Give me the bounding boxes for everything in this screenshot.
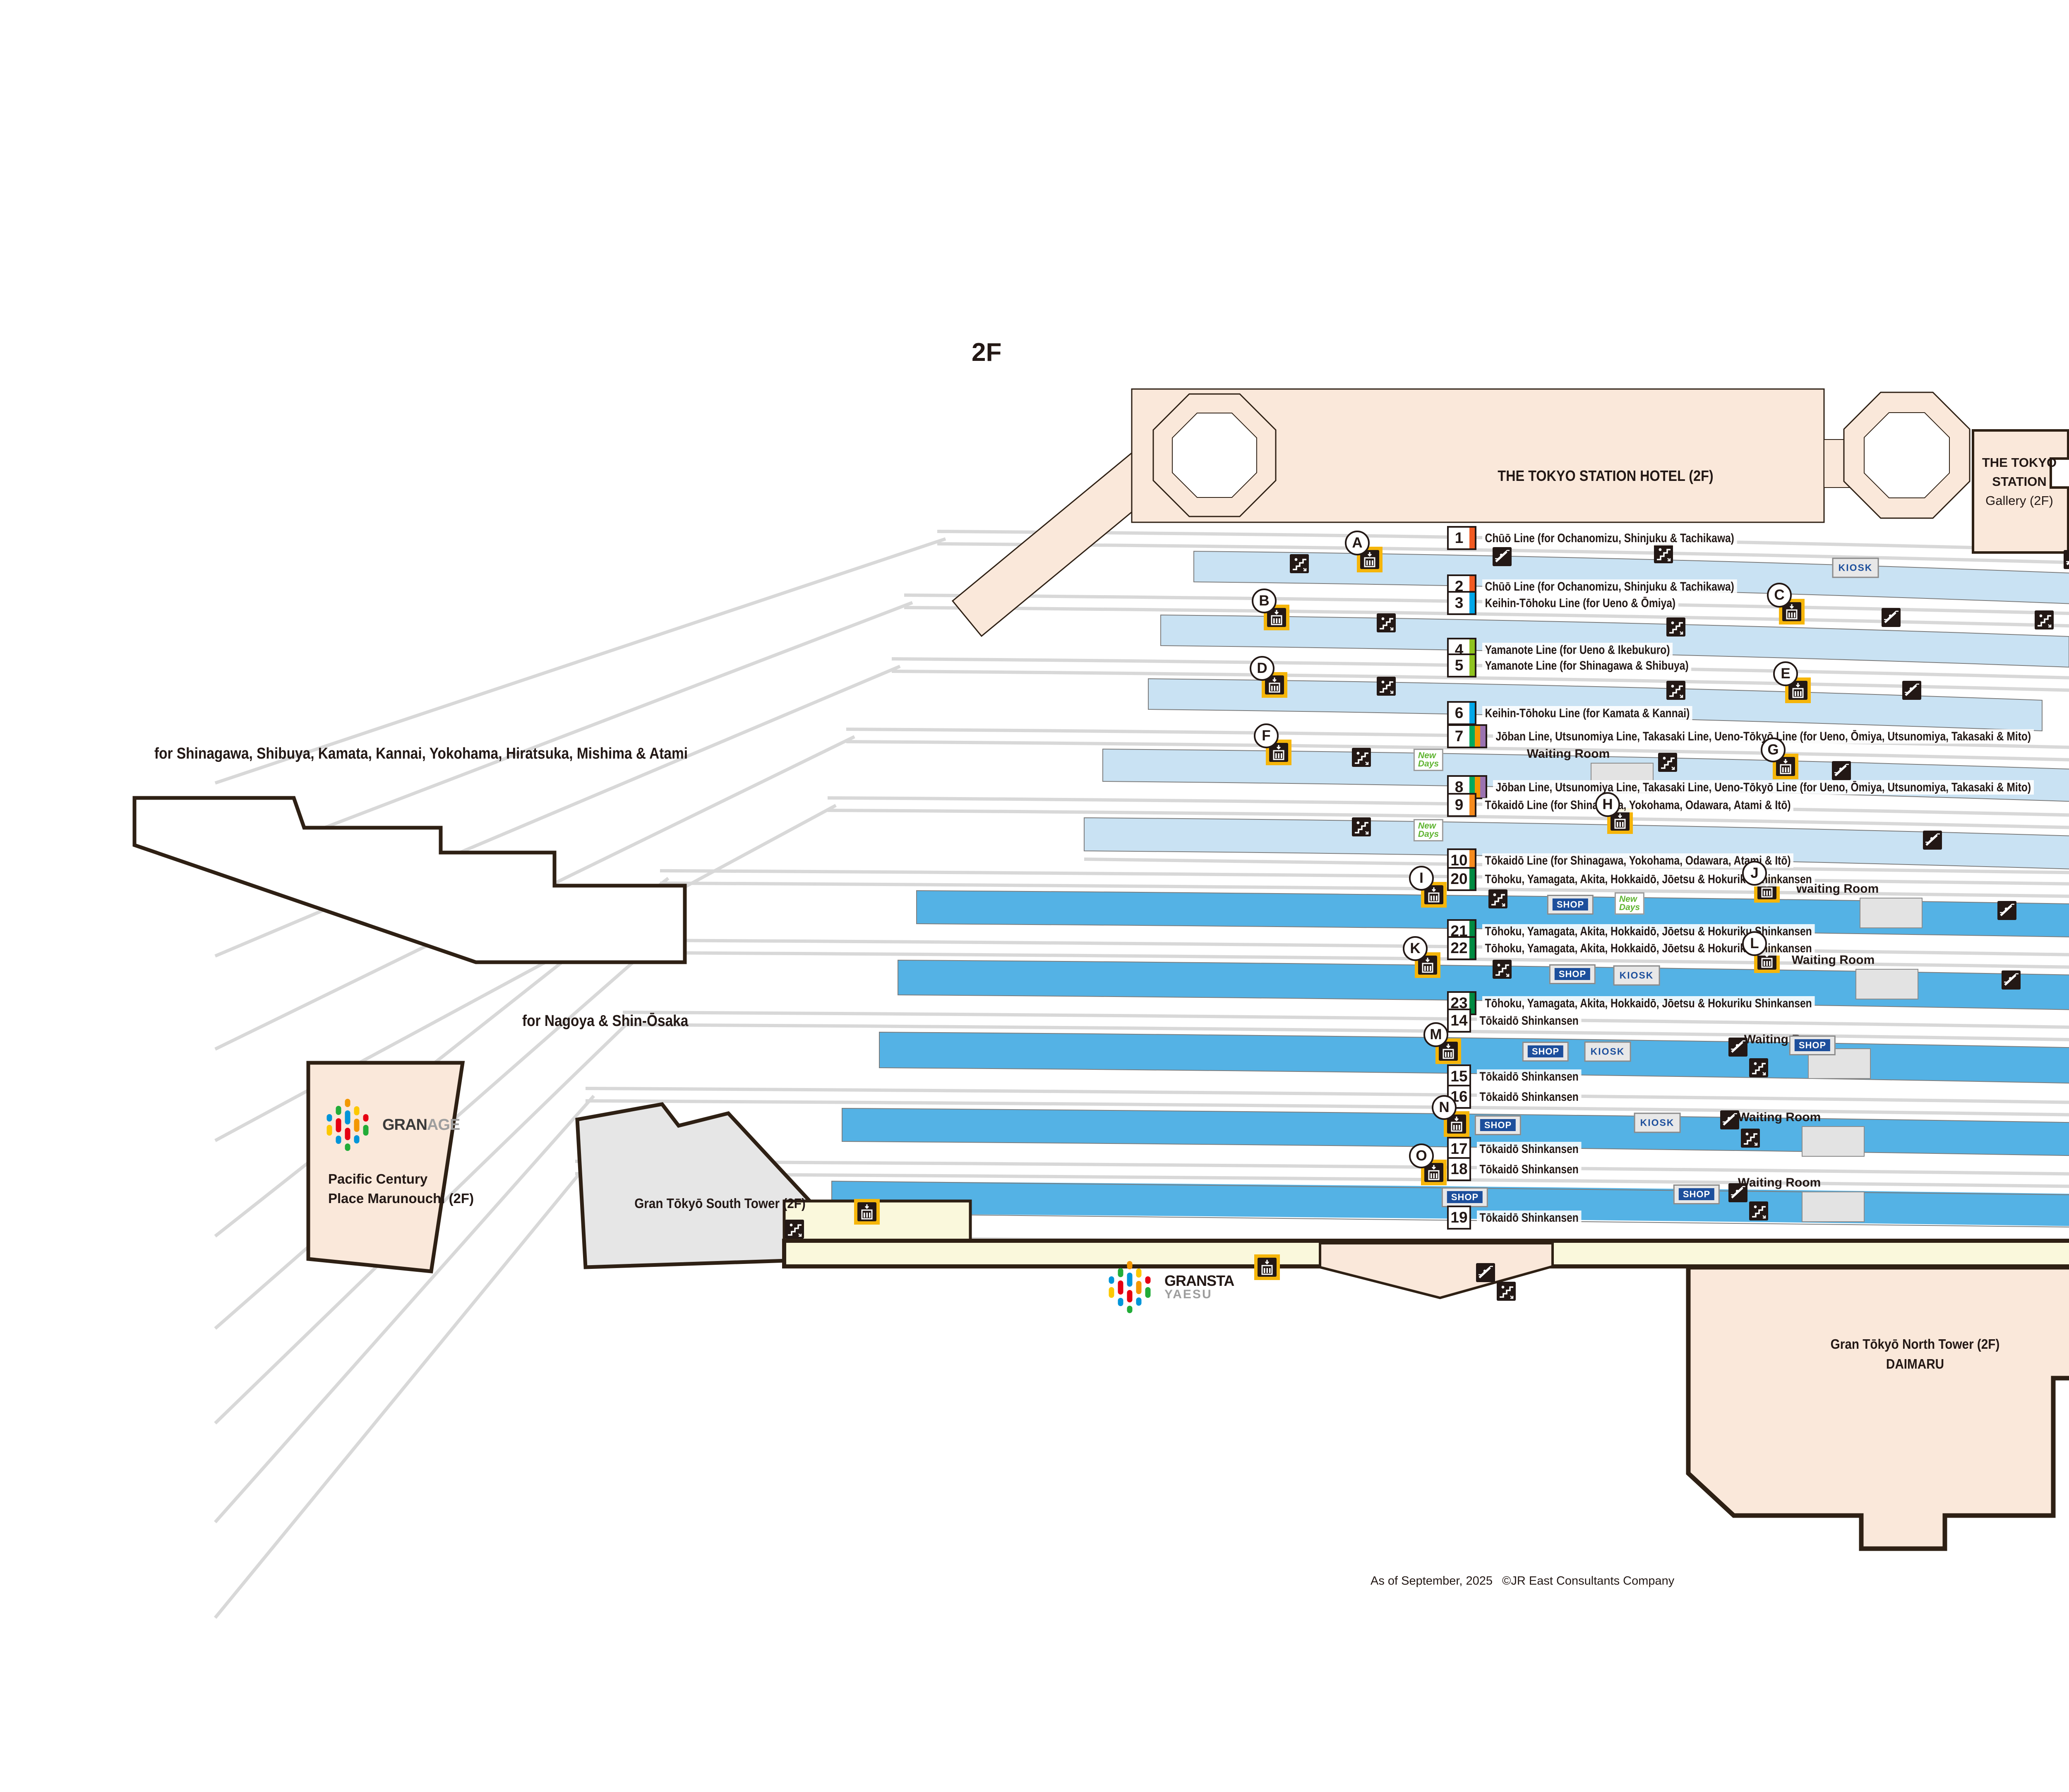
elevator-letter-C: C <box>1767 583 1792 608</box>
logo-dot <box>336 1118 341 1132</box>
logo-dot <box>345 1143 350 1151</box>
newdays-badge: NewDays <box>1414 819 1443 841</box>
platform-label: Keihin-Tōhoku Line (for Kamata & Kannai) <box>1482 706 1692 721</box>
newdays-badge-line1: New <box>1619 895 1640 903</box>
logo-dot <box>1145 1276 1151 1284</box>
direction-southwest: for Shinagawa, Shibuya, Kamata, Kannai, … <box>154 745 688 763</box>
shop-badge-text: SHOP <box>1528 1045 1563 1057</box>
kiosk-badge: KIOSK <box>1584 1042 1631 1062</box>
elevator-letter-B: B <box>1252 589 1277 613</box>
shop-badge-text: SHOP <box>1795 1039 1830 1051</box>
platform-label: Jōban Line, Utsunomiya Line, Takasaki Li… <box>1493 729 2034 744</box>
gransta-yaesu-logo: GRANSTA YAESU <box>1101 1258 1234 1316</box>
logo-dot <box>1127 1290 1133 1302</box>
line-color-stripe <box>1480 726 1486 747</box>
line-color-stripe <box>1469 593 1475 613</box>
waiting-room-label: Waiting Room <box>1738 1176 1821 1190</box>
logo-dot <box>1127 1261 1133 1269</box>
elevator-letter-G: G <box>1761 737 1786 762</box>
waiting-room-label: Waiting Room <box>1738 1110 1821 1124</box>
newdays-badge: NewDays <box>1615 892 1644 915</box>
platform-row: 5Yamanote Line (for Shinagawa & Shibuya) <box>1447 653 1737 677</box>
platform-label: Keihin-Tōhoku Line (for Ueno & Ōmiya) <box>1482 596 1678 610</box>
platform-label: Tōkaidō Line (for Shinagawa, Yokohama, O… <box>1482 798 1793 812</box>
gransta-logo-text: GRANSTA <box>1164 1273 1234 1288</box>
granage-logo: GRANAGE <box>319 1096 460 1154</box>
platform-number-text: 20 <box>1449 869 1469 889</box>
shop-badge-text: SHOP <box>1555 968 1590 980</box>
platform-row: 19Tōkaidō Shinkansen <box>1447 1206 1604 1230</box>
logo-dot <box>345 1099 350 1107</box>
platform-number-text: 19 <box>1449 1207 1469 1228</box>
kiosk-badge: KIOSK <box>1832 558 1879 578</box>
platform-label: Tōkaidō Shinkansen <box>1477 1069 1581 1084</box>
shop-badge: SHOP <box>1673 1184 1720 1204</box>
platform-row: 20Tōhoku, Yamagata, Akita, Hokkaidō, Jōe… <box>1447 867 1888 891</box>
platform-number: 20 <box>1447 867 1476 891</box>
logo-dot <box>1118 1298 1123 1306</box>
platform-number-text: 14 <box>1449 1010 1469 1031</box>
gransta-logo-text-gray: YAESU <box>1164 1288 1234 1301</box>
logo-dot <box>354 1119 360 1132</box>
logo-dot <box>363 1114 369 1122</box>
logo-dot <box>336 1136 341 1144</box>
platform-number-text: 5 <box>1449 655 1469 676</box>
shop-badge-text: SHOP <box>1679 1188 1714 1200</box>
shop-badge: SHOP <box>1789 1035 1836 1055</box>
platform-number: 7 <box>1447 724 1487 748</box>
logo-dot <box>1109 1287 1114 1298</box>
platform-label: Tōkaidō Shinkansen <box>1477 1142 1581 1156</box>
footer-as-of: As of September, 2025 <box>1371 1574 1493 1588</box>
elevator-letter-F: F <box>1254 723 1279 748</box>
platform-row: 14Tōkaidō Shinkansen <box>1447 1009 1604 1033</box>
platform-number: 18 <box>1447 1157 1471 1181</box>
platform-number: 6 <box>1447 701 1476 725</box>
granage-logo-text-gray: AGE <box>427 1116 460 1134</box>
shop-badge: SHOP <box>1547 895 1594 915</box>
elevator-letter-H: H <box>1595 792 1620 817</box>
north-tower-label-line2: DAIMARU <box>1886 1356 1944 1372</box>
footer-credit: ©JR East Consultants Company <box>1502 1574 1674 1588</box>
gallery-label-line1: THE TOKYO <box>1982 455 2057 470</box>
platform-number-text: 15 <box>1449 1066 1469 1087</box>
gransta-logo-dots <box>1101 1258 1159 1316</box>
platform-number: 19 <box>1447 1206 1471 1230</box>
platform-label: Tōkaidō Shinkansen <box>1477 1162 1581 1177</box>
logo-dot <box>1136 1268 1142 1278</box>
logo-dot <box>1127 1273 1133 1287</box>
shop-badge: SHOP <box>1442 1187 1488 1207</box>
platform-number-text: 17 <box>1449 1139 1469 1159</box>
logo-dot <box>363 1125 369 1136</box>
platform-number-text: 6 <box>1449 703 1469 723</box>
newdays-badge-line2: Days <box>1619 903 1640 912</box>
pcp-label-line2: Place Marunouchi (2F) <box>328 1191 474 1206</box>
gallery-label-line2: STATION <box>1992 474 2046 489</box>
line-color-stripe <box>1469 655 1475 676</box>
logo-dot <box>354 1135 360 1143</box>
shop-badge: SHOP <box>1522 1042 1569 1062</box>
platform-label: Yamanote Line (for Shinagawa & Shibuya) <box>1482 658 1691 673</box>
platform-number-text: 9 <box>1449 795 1469 815</box>
logo-dot <box>345 1110 350 1124</box>
newdays-badge-line2: Days <box>1418 760 1439 768</box>
platform-row: 9Tōkaidō Line (for Shinagawa, Yokohama, … <box>1447 793 1862 817</box>
logo-dot <box>327 1125 332 1136</box>
shop-badge-text: SHOP <box>1480 1119 1516 1131</box>
logo-dot <box>327 1114 332 1122</box>
gallery-label-line3: Gallery (2F) <box>1985 493 2053 508</box>
line-color-stripe <box>1469 795 1475 815</box>
platform-label: Tōkaidō Shinkansen <box>1477 1014 1581 1028</box>
platform-row: 22Tōhoku, Yamagata, Akita, Hokkaidō, Jōe… <box>1447 936 1888 960</box>
platform-number: 5 <box>1447 653 1476 677</box>
newdays-badge-line2: Days <box>1418 830 1439 838</box>
platform-number-text: 18 <box>1449 1159 1469 1179</box>
logo-dot <box>1145 1287 1151 1298</box>
platform-label: Jōban Line, Utsunomiya Line, Takasaki Li… <box>1493 780 2034 795</box>
newdays-badge-line1: New <box>1418 752 1439 760</box>
line-color-stripe <box>1475 726 1480 747</box>
platform-number-text: 1 <box>1449 528 1469 548</box>
platform-number-text: 22 <box>1449 938 1469 958</box>
kiosk-badge: KIOSK <box>1634 1113 1681 1133</box>
elevator-letter-A: A <box>1345 531 1370 555</box>
newdays-badge-line1: New <box>1418 822 1439 830</box>
south-tower-label: Gran Tōkyō South Tower (2F) <box>634 1196 806 1211</box>
platform-number: 9 <box>1447 793 1476 817</box>
platform-label: Tōkaidō Shinkansen <box>1477 1211 1581 1225</box>
platform-number-text: 7 <box>1449 726 1469 747</box>
platform-row: 6Keihin-Tōhoku Line (for Kamata & Kannai… <box>1447 701 1738 725</box>
platform-number: 14 <box>1447 1009 1471 1033</box>
logo-dot <box>1136 1281 1142 1294</box>
platform-number: 22 <box>1447 936 1476 960</box>
waiting-room-label: Waiting Room <box>1527 747 1610 761</box>
logo-dot <box>1118 1268 1123 1277</box>
shop-badge: SHOP <box>1549 964 1596 984</box>
elevator-letter-M: M <box>1423 1022 1448 1047</box>
elevator-letter-J: J <box>1742 861 1767 886</box>
elevator-letter-I: I <box>1409 866 1434 891</box>
elevator-letter-O: O <box>1409 1143 1434 1168</box>
shop-badge-text: SHOP <box>1447 1191 1483 1203</box>
line-color-stripe <box>1469 703 1475 723</box>
platform-row: 3Keihin-Tōhoku Line (for Ueno & Ōmiya) <box>1447 591 1721 615</box>
granage-logo-text: GRAN <box>382 1116 427 1134</box>
line-color-stripe <box>1469 528 1475 548</box>
platform-number: 3 <box>1447 591 1476 615</box>
kiosk-badge: KIOSK <box>1613 966 1660 986</box>
granage-logo-dots <box>319 1096 377 1154</box>
platform-number-text: 3 <box>1449 593 1469 613</box>
logo-dot <box>354 1106 360 1115</box>
elevator-letter-N: N <box>1432 1095 1457 1120</box>
platform-row: 18Tōkaidō Shinkansen <box>1447 1157 1604 1181</box>
shop-badge-text: SHOP <box>1553 898 1588 910</box>
platform-label: Tōkaidō Shinkansen <box>1477 1090 1581 1104</box>
newdays-badge: NewDays <box>1414 749 1443 771</box>
logo-dot <box>336 1106 341 1115</box>
direction-tokaido-shinkansen: for Nagoya & Shin-Ōsaka <box>522 1012 688 1030</box>
elevator-letter-D: D <box>1250 656 1275 681</box>
logo-dot <box>1118 1280 1123 1295</box>
pcp-label-line1: Pacific Century <box>328 1171 427 1187</box>
platform-number: 1 <box>1447 526 1476 550</box>
elevator-letter-K: K <box>1403 936 1428 961</box>
hotel-label: THE TOKYO STATION HOTEL (2F) <box>1498 467 1713 485</box>
platform-row: 16Tōkaidō Shinkansen <box>1447 1085 1604 1109</box>
platform-label: Chūō Line (for Ochanomizu, Shinjuku & Ta… <box>1482 531 1737 545</box>
logo-dot <box>1127 1306 1133 1313</box>
floor-label: 2F <box>972 338 1001 367</box>
line-color-stripe <box>1469 938 1475 958</box>
line-color-stripe <box>1469 869 1475 889</box>
shop-badge: SHOP <box>1475 1115 1521 1135</box>
elevator-letter-L: L <box>1742 931 1767 956</box>
north-tower-label-line1: Gran Tōkyō North Tower (2F) <box>1831 1336 2000 1352</box>
labels-layer: 2F THE TOKYO STATION HOTEL (2F) THE TOKY… <box>0 0 2069 1792</box>
elevator-letter-E: E <box>1773 661 1798 686</box>
logo-dot <box>1109 1276 1114 1284</box>
platform-row: 7Jōban Line, Utsunomiya Line, Takasaki L… <box>1447 724 2069 748</box>
logo-dot <box>345 1128 350 1140</box>
platform-row: 1Chūō Line (for Ochanomizu, Shinjuku & T… <box>1447 526 1793 550</box>
logo-dot <box>1136 1297 1142 1306</box>
line-color-stripe <box>1469 726 1475 747</box>
station-map-canvas: 2F THE TOKYO STATION HOTEL (2F) THE TOKY… <box>0 0 2069 1792</box>
